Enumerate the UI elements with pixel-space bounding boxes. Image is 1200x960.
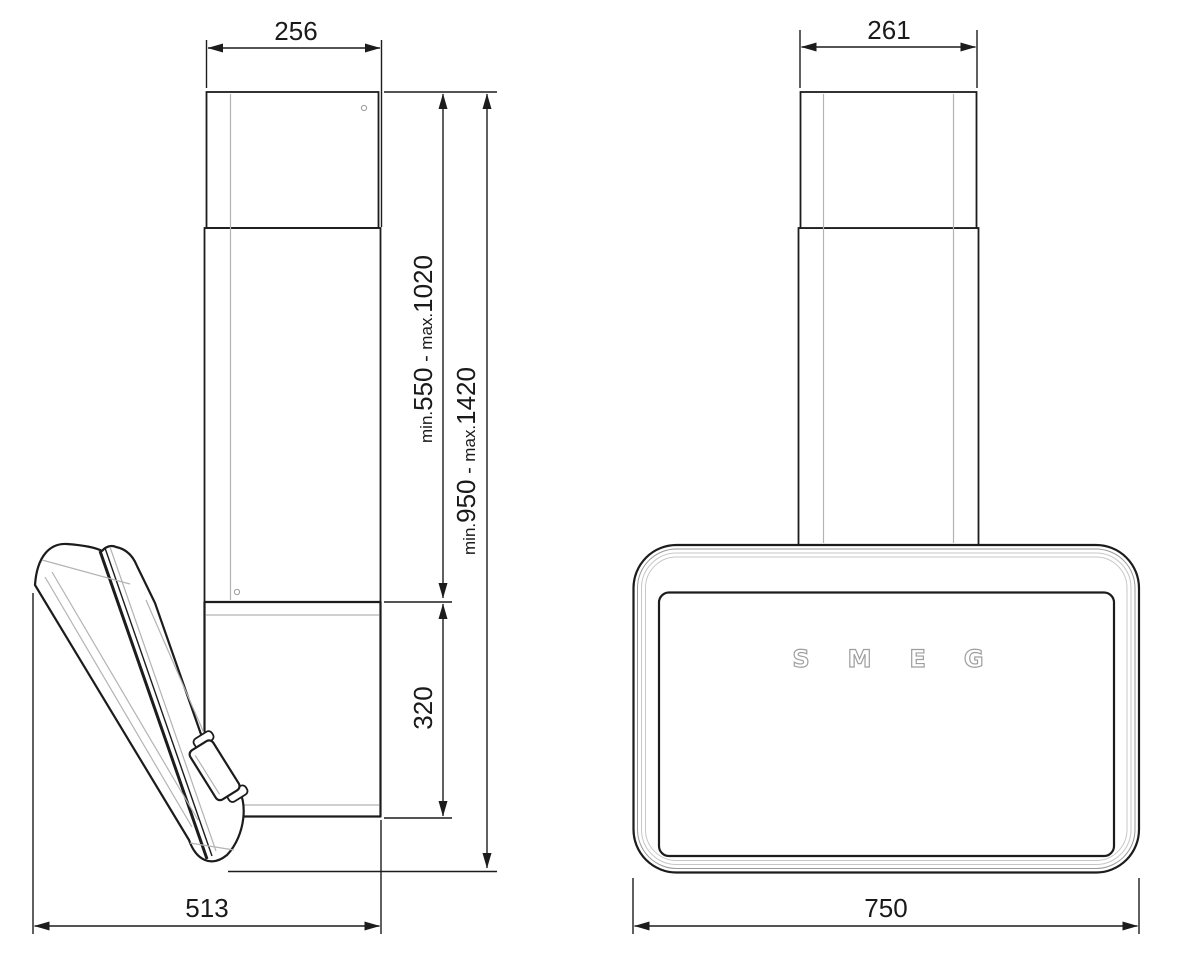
side-screw-hole-bottom (234, 589, 239, 594)
dim-chimney-width-side: 256 (207, 16, 382, 227)
front-glass-panel (659, 593, 1114, 857)
side-dimensions: 256 min.550 - max.1020 min.950 - max.142… (33, 16, 497, 934)
side-tilted-panel (35, 544, 249, 861)
side-chimney-upper (207, 92, 379, 228)
side-view (35, 92, 497, 872)
front-chimney-lower (799, 228, 979, 545)
side-screw-hole-top (361, 105, 366, 110)
dim-256-label: 256 (274, 16, 317, 46)
dim-261-label: 261 (867, 15, 910, 45)
front-hood-body: SMEG (634, 545, 1140, 873)
front-chimney (799, 92, 979, 545)
front-view: SMEG (634, 92, 1140, 873)
side-panel-silhouette (35, 544, 244, 861)
dim-320-label: 320 (408, 686, 438, 729)
dim-550-1020-label: min.550 - max.1020 (408, 255, 438, 443)
dim-750-label: 750 (864, 893, 907, 923)
dim-chimney-width-front: 261 (800, 15, 977, 88)
front-chimney-upper (801, 92, 977, 228)
dim-950-1420-label: min.950 - max.1420 (451, 367, 481, 555)
smeg-logo: SMEG (792, 645, 1021, 673)
dim-width: 750 (633, 878, 1139, 934)
dim-513-label: 513 (185, 893, 228, 923)
dim-chimney-height: min.550 - max.1020 (408, 94, 443, 598)
side-chimney (205, 92, 381, 602)
hood-dimension-diagram: 256 min.550 - max.1020 min.950 - max.142… (0, 0, 1200, 960)
technical-drawing-page: 256 min.550 - max.1020 min.950 - max.142… (0, 0, 1200, 960)
dim-body-height: 320 (384, 602, 452, 818)
dim-total-height: min.950 - max.1420 (451, 94, 487, 868)
